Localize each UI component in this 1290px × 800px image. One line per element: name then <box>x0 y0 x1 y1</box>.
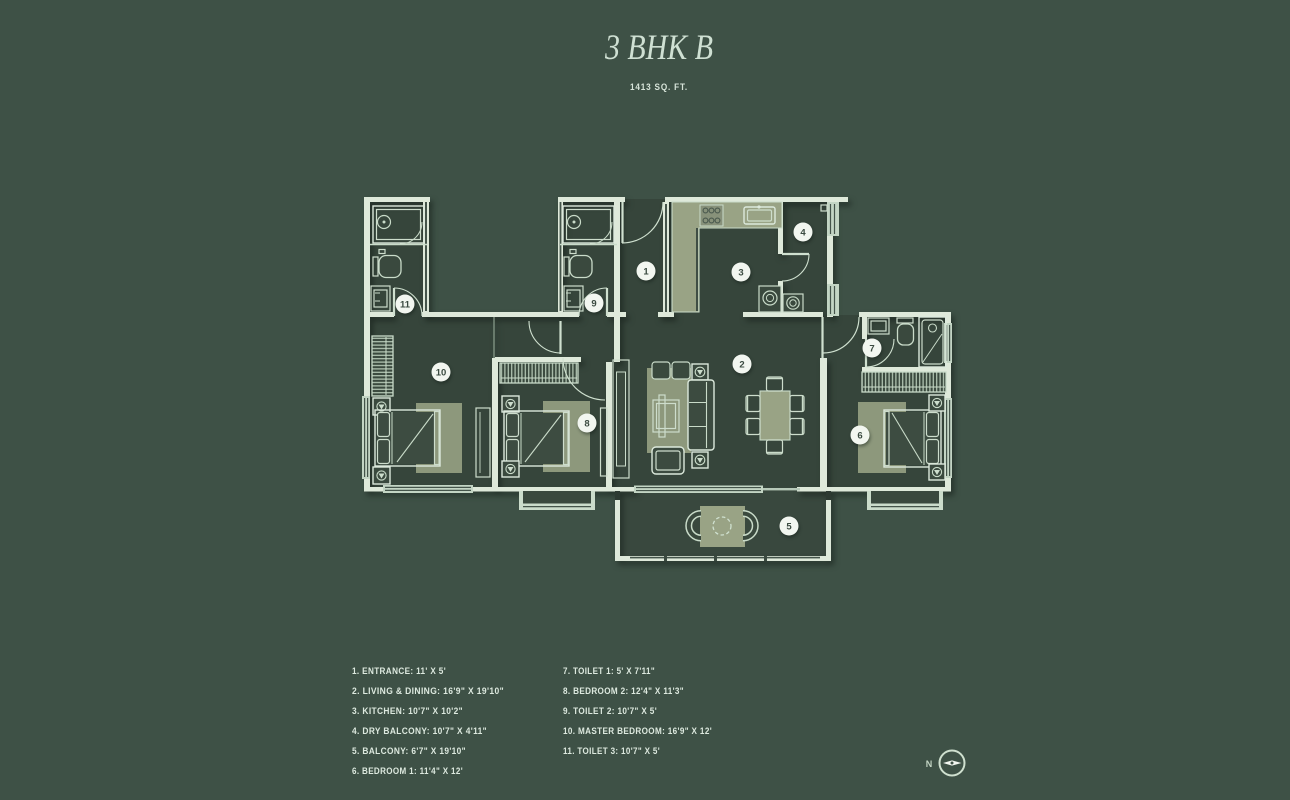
svg-text:4: 4 <box>800 228 806 239</box>
svg-text:1. ENTRANCE: 11' X 5': 1. ENTRANCE: 11' X 5' <box>352 666 446 676</box>
svg-text:3 BHK B: 3 BHK B <box>604 27 713 67</box>
svg-text:9. TOILET 2: 10'7" X 5': 9. TOILET 2: 10'7" X 5' <box>563 706 657 716</box>
svg-text:10. MASTER BEDROOM: 16'9" X 12: 10. MASTER BEDROOM: 16'9" X 12' <box>563 726 712 736</box>
svg-text:8: 8 <box>584 419 589 430</box>
svg-text:5: 5 <box>786 522 792 533</box>
svg-text:3: 3 <box>738 268 743 279</box>
svg-text:4. DRY BALCONY: 10'7" X 4'11": 4. DRY BALCONY: 10'7" X 4'11" <box>352 726 487 736</box>
svg-text:8. BEDROOM 2: 12'4" X 11'3": 8. BEDROOM 2: 12'4" X 11'3" <box>563 686 684 696</box>
svg-text:9: 9 <box>591 299 596 310</box>
svg-text:5. BALCONY: 6'7" X 19'10": 5. BALCONY: 6'7" X 19'10" <box>352 746 466 756</box>
svg-text:2. LIVING & DINING: 16'9" X 19: 2. LIVING & DINING: 16'9" X 19'10" <box>352 686 504 696</box>
svg-text:2: 2 <box>739 360 744 371</box>
svg-text:6: 6 <box>857 431 862 442</box>
svg-text:7. TOILET 1: 5' X 7'11": 7. TOILET 1: 5' X 7'11" <box>563 666 655 676</box>
svg-text:1413 SQ. FT.: 1413 SQ. FT. <box>630 82 688 92</box>
svg-text:11: 11 <box>400 300 411 311</box>
svg-text:3. KITCHEN: 10'7" X 10'2": 3. KITCHEN: 10'7" X 10'2" <box>352 706 463 716</box>
svg-text:7: 7 <box>869 344 874 355</box>
svg-text:6. BEDROOM 1: 11'4" X 12': 6. BEDROOM 1: 11'4" X 12' <box>352 766 463 776</box>
svg-text:1: 1 <box>643 267 649 278</box>
svg-text:N: N <box>926 759 933 769</box>
svg-text:11. TOILET 3: 10'7" X 5': 11. TOILET 3: 10'7" X 5' <box>563 746 660 756</box>
svg-text:10: 10 <box>436 368 447 379</box>
